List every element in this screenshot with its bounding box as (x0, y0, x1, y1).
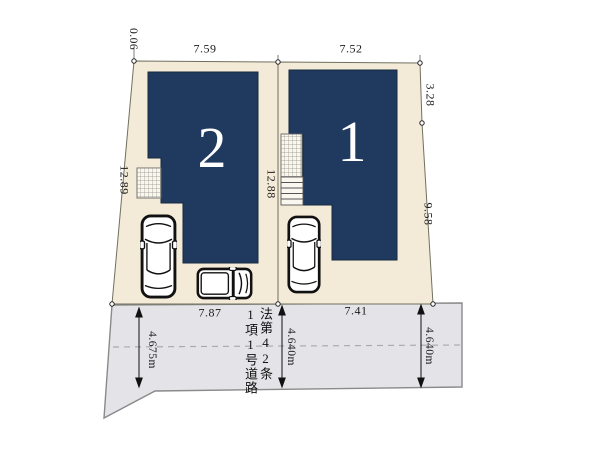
car-icon-lot1 (287, 217, 322, 292)
dim-road-width-right: 4.640m (423, 327, 435, 365)
car-icon-lot2 (140, 216, 178, 297)
dim-road-width-middle: 4.640m (285, 328, 297, 366)
road-designation-label: 法第42条 1項1号道路 (243, 307, 273, 395)
building-2-number: 2 (198, 119, 227, 177)
dim-lot2-left-depth: 12.89 (117, 165, 132, 195)
lot1-entrance-steps (281, 177, 303, 205)
dim-divider-depth: 12.88 (264, 169, 279, 199)
dim-corner-jog: 0.06 (127, 28, 139, 50)
dim-lot1-right-lower: 9.58 (421, 203, 436, 226)
lot1-terrace-hatch (281, 134, 302, 177)
dim-lot2-top-width: 7.59 (194, 42, 217, 57)
dim-road-width-left: 4.675m (146, 331, 158, 369)
lot2-terrace-hatch (137, 168, 161, 198)
dim-lot1-right-upper: 3.28 (423, 84, 438, 107)
site-plan-drawing (0, 0, 600, 450)
dim-lot1-top-width: 7.52 (340, 42, 363, 57)
dim-lot1-frontage: 7.41 (345, 304, 368, 319)
building-1-number: 1 (338, 113, 367, 171)
site-plan: 2 1 7.59 7.52 0.06 12.89 12.88 3.28 9.58… (0, 0, 600, 450)
van-icon-lot2 (198, 267, 251, 301)
dim-lot2-frontage: 7.87 (199, 306, 222, 321)
